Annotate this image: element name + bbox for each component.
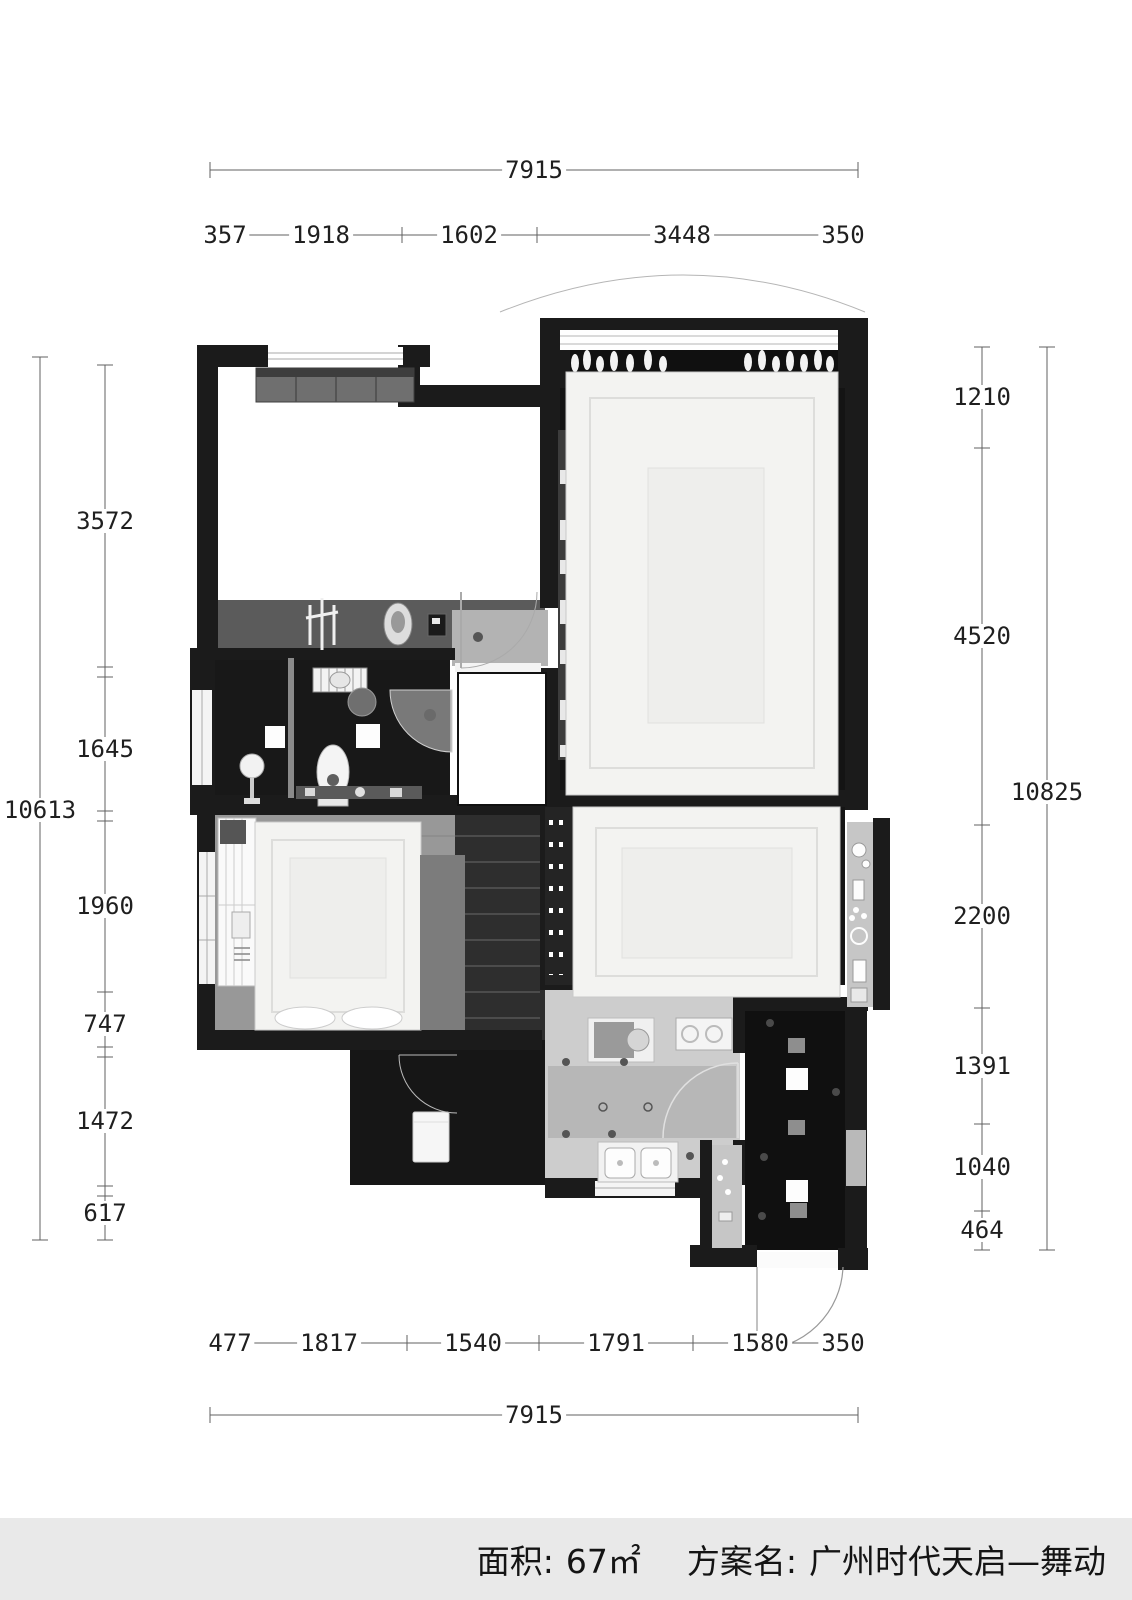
entry-wall-niche [846,1130,866,1186]
bathroom-vanity [296,786,422,799]
pillow [275,1007,335,1029]
kitchen-window [595,1181,675,1196]
living-window [268,347,403,365]
dim-left-seg-4: 1472 [73,1109,137,1133]
sofa [256,368,414,402]
dim-right-seg-3: 1391 [950,1054,1014,1078]
dim-top-seg-1: 1918 [289,223,353,247]
dim-left-seg-2: 1960 [73,894,137,918]
kitchen-rug [548,1066,736,1138]
master-window [560,330,838,350]
dim-bottom-seg-1: 1817 [297,1331,361,1355]
dim-left-seg-0: 3572 [73,509,137,533]
area-label: 面积: [477,1535,554,1583]
dim-right-seg-4: 1040 [950,1155,1014,1179]
second-bed [573,807,840,997]
dim-right-seg-2: 2200 [950,904,1014,928]
kitchen-appliance [676,1018,732,1050]
footer-bar: 面积: 67㎡ 方案名: 广州时代天启—舞动 [0,1518,1132,1600]
bathroom-window [192,690,212,785]
bedside-rug [420,855,465,1030]
dim-top-seg-0: 357 [200,223,249,247]
shoe-cabinet [712,1145,742,1248]
dim-top-seg-3: 3448 [650,223,714,247]
dim-bottom-seg-0: 477 [205,1331,254,1355]
dim-bottom-total: 7915 [502,1403,566,1427]
dim-top-seg-4: 350 [818,223,867,247]
washing-machine [413,1112,449,1162]
hallway-floor [455,810,545,1042]
dim-left-seg-1: 1645 [73,737,137,761]
hallway-floor-lower [455,1040,545,1185]
shower-drain [348,688,376,716]
dim-right-seg-5: 464 [957,1218,1006,1242]
white-door-panel [458,673,546,805]
plant-icon [220,820,246,844]
right-wardrobe-column [847,822,873,1007]
floorplan-canvas: 7915 357 1918 1602 3448 350 477 1817 154… [0,0,1132,1600]
dim-top-seg-2: 1602 [437,223,501,247]
bathroom-divider [288,658,294,798]
dim-right-seg-0: 1210 [950,385,1014,409]
bottom-left-bed [255,822,421,1030]
dim-bottom-seg-3: 1791 [584,1331,648,1355]
plan-name-label: 方案名: [687,1535,797,1583]
master-bed [566,372,838,795]
dim-left-seg-3: 747 [80,1012,129,1036]
dim-bottom-seg-2: 1540 [441,1331,505,1355]
plan-name-value: 广州时代天启—舞动 [809,1535,1106,1583]
bedroom-window [199,852,215,984]
dim-top-total: 7915 [502,158,566,182]
second-bedroom-shelf [545,807,573,985]
floorplan-drawing [0,0,1132,1600]
dim-left-seg-5: 617 [80,1201,129,1225]
dim-bottom-seg-5: 350 [818,1331,867,1355]
cooktop-counter [588,1018,654,1062]
floor-drain [356,724,380,748]
bedroom-wardrobe-strip [218,818,256,986]
dim-right-total: 10825 [1008,780,1086,804]
dim-bottom-seg-4: 1580 [728,1331,792,1355]
pillow [342,1007,402,1029]
clothes-rack-icon [306,598,338,650]
window-curtain-arc [500,275,865,312]
area-value: 67㎡ [566,1535,641,1583]
dim-left-total: 10613 [1,798,79,822]
double-sink-counter [598,1142,678,1182]
floor-drain [265,726,285,748]
dim-right-seg-1: 4520 [950,624,1014,648]
